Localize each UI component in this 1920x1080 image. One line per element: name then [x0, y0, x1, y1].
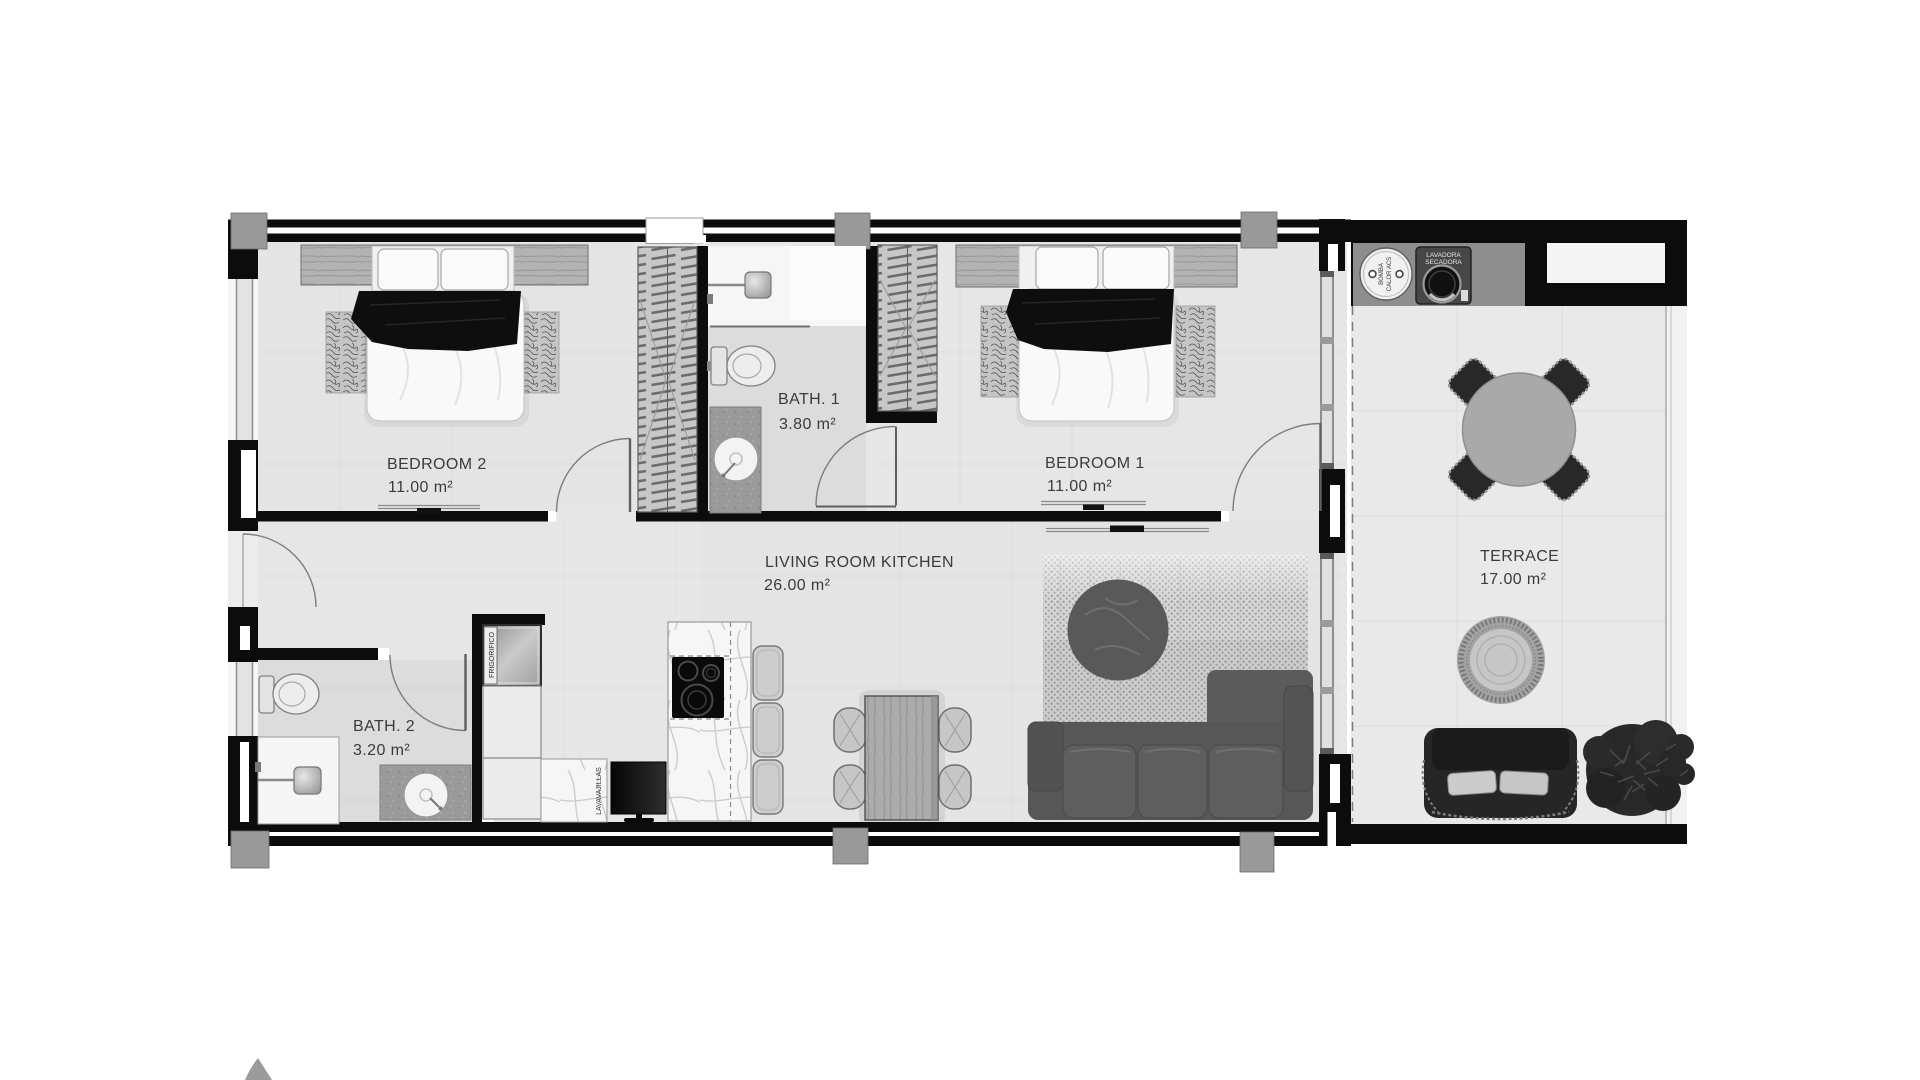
svg-text:17.00 m²: 17.00 m² — [1480, 571, 1547, 588]
svg-text:BEDROOM 2: BEDROOM 2 — [387, 456, 487, 473]
svg-text:TERRACE: TERRACE — [1480, 548, 1559, 565]
svg-text:BOMBA: BOMBA — [1379, 263, 1385, 285]
svg-text:BEDROOM 1: BEDROOM 1 — [1045, 455, 1145, 472]
svg-text:CALOR ACS: CALOR ACS — [1387, 257, 1393, 291]
svg-text:26.00 m²: 26.00 m² — [764, 577, 831, 594]
svg-text:3.80 m²: 3.80 m² — [779, 416, 836, 433]
svg-text:LAVAVAJILLAS: LAVAVAJILLAS — [596, 767, 603, 815]
svg-text:BATH. 1: BATH. 1 — [778, 391, 840, 408]
svg-text:LAVADORA: LAVADORA — [1426, 252, 1461, 259]
svg-text:11.00 m²: 11.00 m² — [388, 479, 453, 496]
svg-text:3.20 m²: 3.20 m² — [353, 742, 410, 759]
svg-text:FRIGORIFICO: FRIGORIFICO — [489, 632, 496, 678]
svg-text:BATH. 2: BATH. 2 — [353, 718, 415, 735]
svg-text:LIVING ROOM KITCHEN: LIVING ROOM KITCHEN — [765, 554, 954, 571]
svg-text:11.00 m²: 11.00 m² — [1047, 478, 1112, 495]
